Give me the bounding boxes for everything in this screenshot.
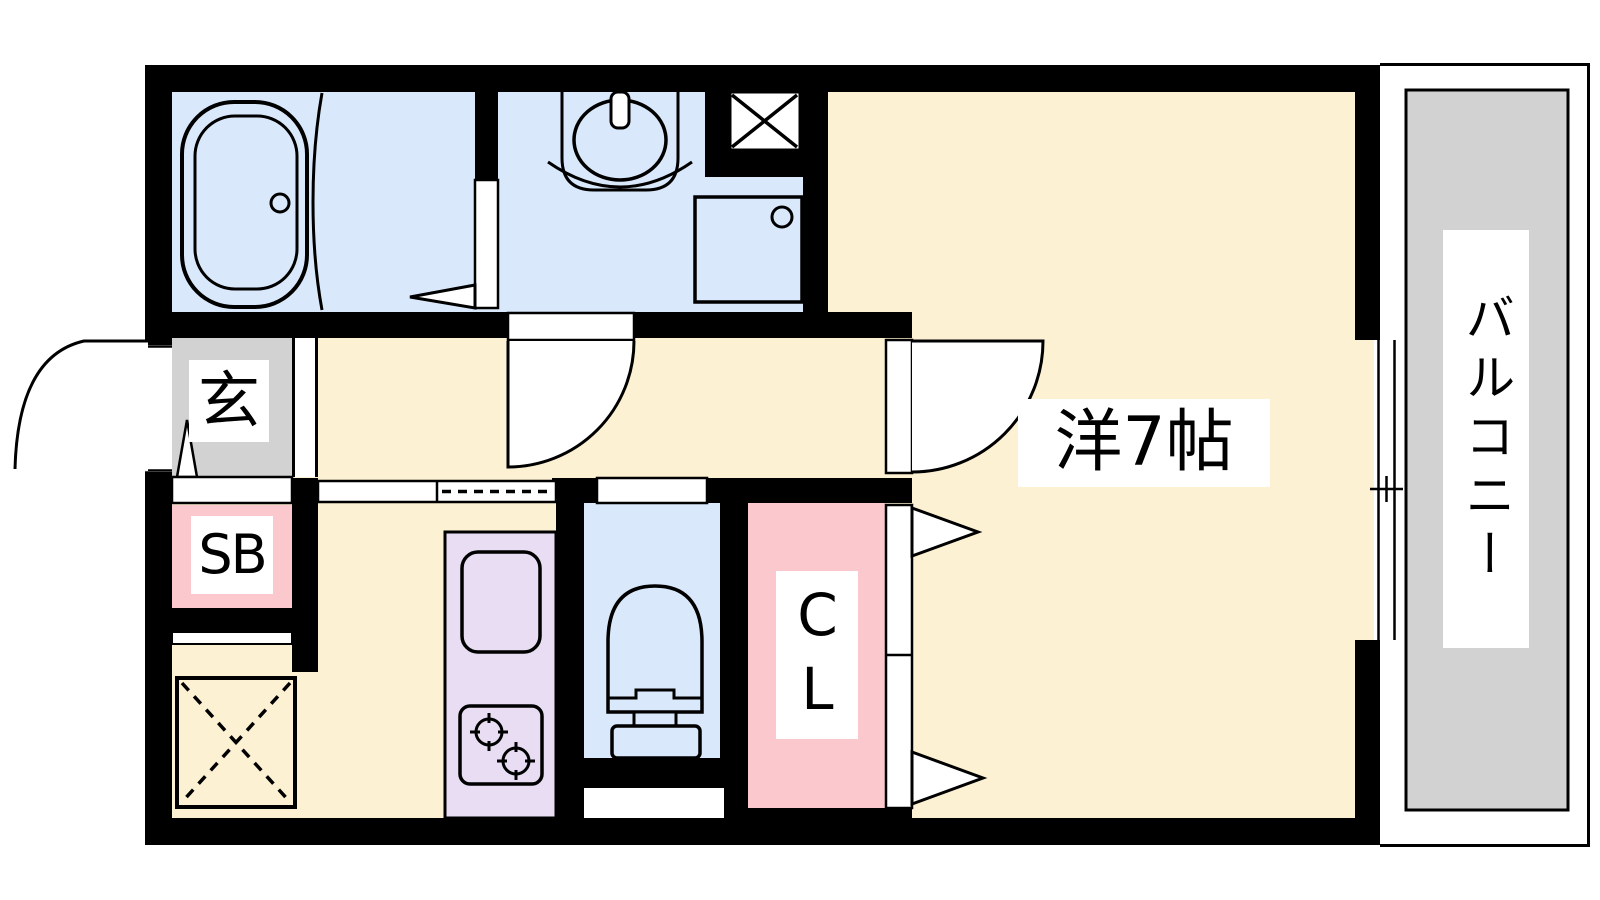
entrance-label: 玄 [189, 360, 269, 442]
main-room-doorframe [886, 340, 912, 473]
wall-below-shoebox [172, 608, 292, 632]
wall-mid-horizontal-right [634, 312, 912, 338]
toilet-doorway [597, 478, 707, 503]
wall-below-toilet [584, 758, 720, 788]
toilet-icon [608, 586, 702, 758]
wall-entrance-kitchen [292, 478, 318, 672]
wall-bath-washroom [475, 92, 498, 180]
floor-plan: 玄 SB CL 洋7帖 バルコニー [0, 0, 1600, 900]
shoe-box-label: SB [191, 516, 273, 594]
wall-top [145, 65, 1380, 92]
wall-toilet-closet [720, 503, 748, 818]
wall-below-closet [748, 808, 912, 820]
entrance-step [292, 338, 318, 477]
below-shoebox-band [172, 632, 292, 644]
wall-toilet-left [556, 503, 584, 818]
bathroom-door [475, 180, 498, 308]
wall-lower-horizontal-b [707, 478, 912, 503]
wall-right-lower [1355, 640, 1380, 845]
entrance-shoebox-band [172, 477, 292, 503]
wall-left-upper [145, 65, 172, 345]
main-room-label: 洋7帖 [1018, 399, 1270, 487]
washroom-doorway [508, 313, 634, 340]
wall-right-upper [1355, 65, 1380, 340]
wall-left-lower [145, 472, 172, 845]
closet-label: CL [776, 571, 858, 739]
wall-lower-horizontal-a [552, 478, 597, 503]
balcony-label: バルコニー [1443, 230, 1529, 648]
wall-bottom [145, 818, 1380, 845]
toilet-niche [584, 788, 724, 818]
closet-door-track [886, 505, 912, 808]
entrance-door-swing-fill [15, 341, 148, 471]
entrance-opening [145, 345, 172, 472]
floor-plan-drawing [0, 0, 1600, 900]
wall-mid-horizontal-left [145, 312, 508, 338]
